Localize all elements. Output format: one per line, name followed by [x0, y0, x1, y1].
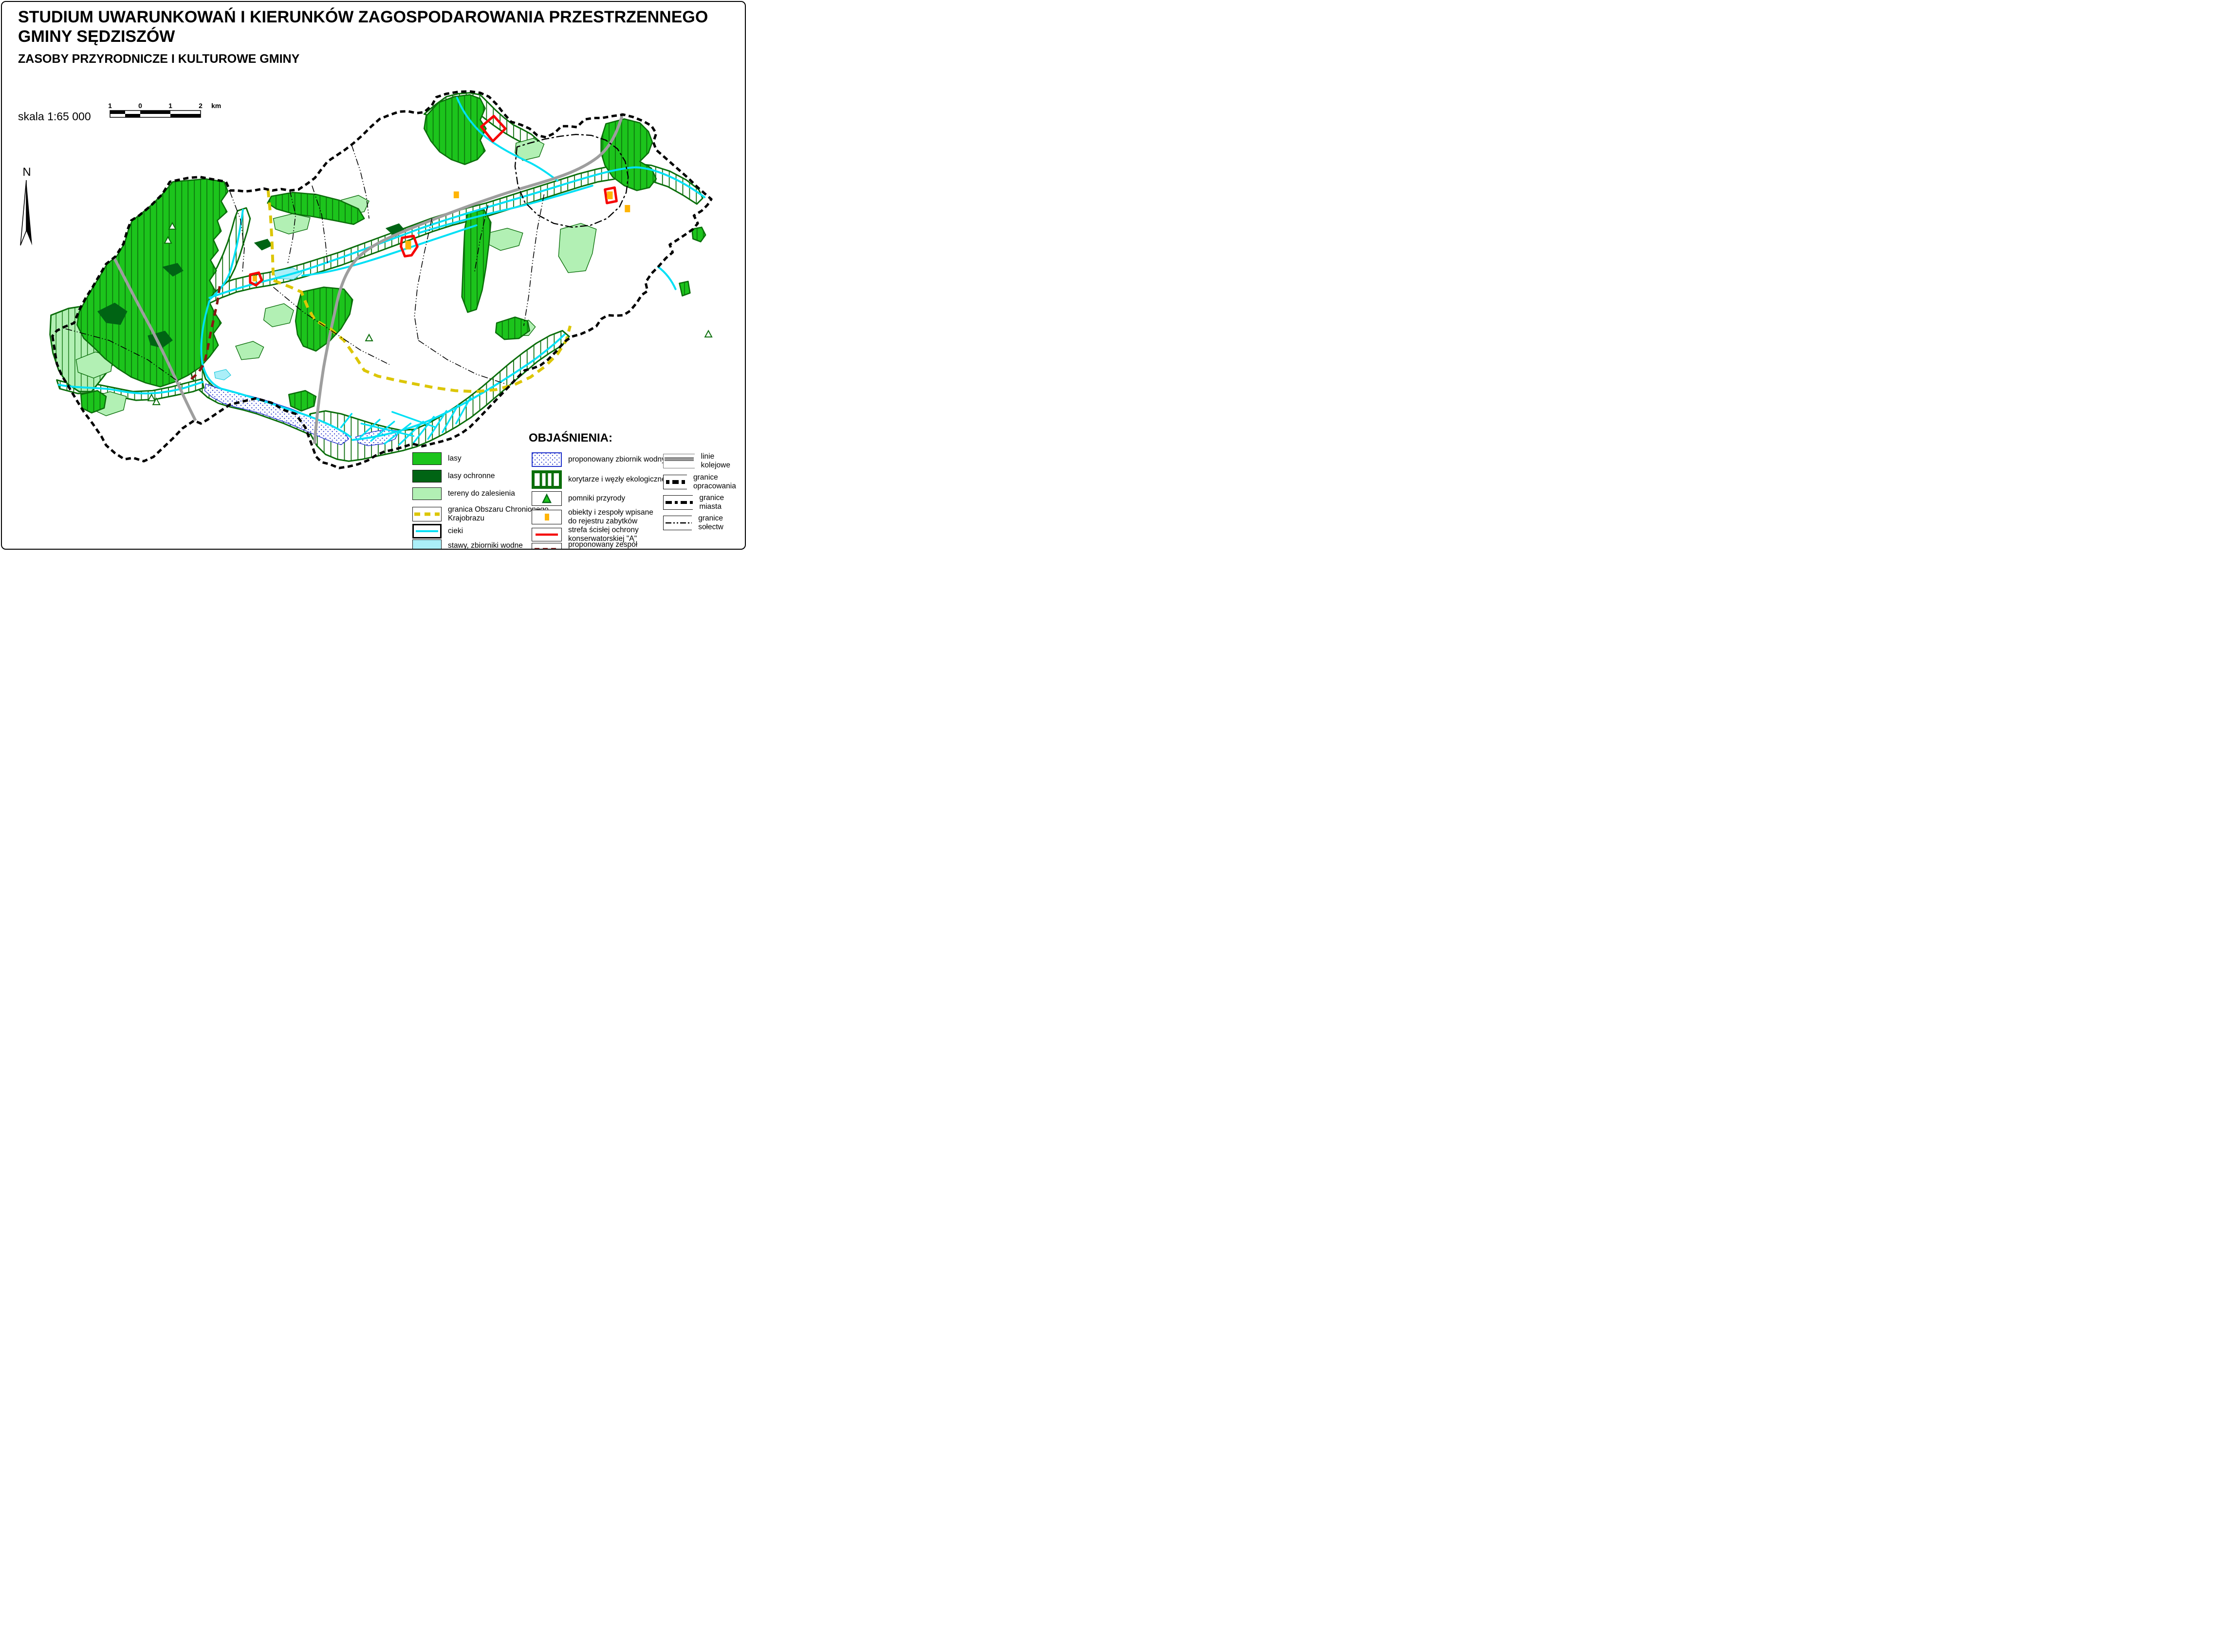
- page-title-line2: GMINY SĘDZISZÓW: [18, 27, 708, 47]
- north-indicator: N: [17, 166, 36, 251]
- scale-tick-1: 1: [108, 102, 112, 110]
- page-title-line1: STUDIUM UWARUNKOWAŃ I KIERUNKÓW ZAGOSPOD…: [18, 8, 708, 27]
- north-label: N: [18, 166, 36, 179]
- scale-tick-1b: 1: [168, 102, 172, 110]
- stream-east-tail: [658, 267, 676, 289]
- scale-bar-blocks: [110, 111, 201, 117]
- north-arrow-icon: [18, 179, 35, 248]
- map-sheet: STUDIUM UWARUNKOWAŃ I KIERUNKÓW ZAGOSPOD…: [1, 1, 746, 550]
- forest-south-small: [289, 390, 316, 411]
- page-subtitle: ZASOBY PRZYRODNICZE I KULTUROWE GMINY: [18, 52, 299, 66]
- scale-unit: km: [211, 102, 221, 110]
- map-canvas: [2, 2, 745, 549]
- scale-tick-2: 2: [199, 102, 203, 110]
- scale-tick-0: 0: [138, 102, 142, 110]
- forest-east-boundary-small: [680, 281, 690, 296]
- scale-label: skala 1:65 000: [18, 110, 91, 123]
- scale-bar: 1 0 1 2 km: [106, 102, 221, 122]
- header: STUDIUM UWARUNKOWAŃ I KIERUNKÓW ZAGOSPOD…: [18, 8, 708, 47]
